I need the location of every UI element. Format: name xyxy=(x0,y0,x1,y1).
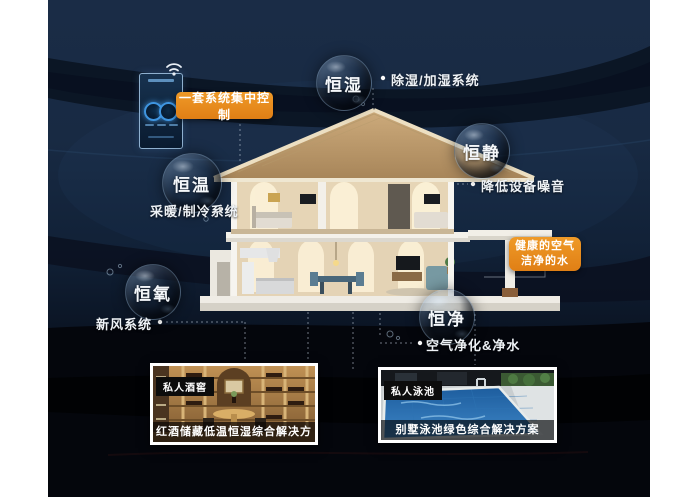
bubble-constant-oxygen: 恒氧 xyxy=(125,264,181,320)
bubble-label: 恒湿 xyxy=(325,71,363,96)
card-tag: 私人酒窖 xyxy=(156,377,214,396)
card-tag: 私人泳池 xyxy=(384,381,442,400)
panel-footer-bar xyxy=(148,136,174,138)
healthy-air-box: 健康的空气 洁净的水 xyxy=(509,237,581,271)
annotation-fresh-air: 新风系统 xyxy=(96,314,152,333)
bubble-constant-humidity: 恒湿 xyxy=(316,55,372,111)
bubble-label: 恒净 xyxy=(428,305,466,330)
panel-stat xyxy=(169,124,178,126)
card-caption: 红酒储藏低温恒湿综合解决方案 xyxy=(153,422,315,442)
healthy-air-line1: 健康的空气 xyxy=(515,239,575,254)
card-wine-cellar: 私人酒窖 红酒储藏低温恒湿综合解决方案 xyxy=(150,363,318,445)
annotation-noise-reduction: 降低设备噪音 xyxy=(481,176,565,195)
panel-stat xyxy=(145,124,154,126)
card-private-pool: 私人泳池 别墅泳池绿色综合解决方案 xyxy=(378,367,557,443)
bubble-label: 恒氧 xyxy=(134,280,172,305)
annotation-dehumidify-system: 除湿/加湿系统 xyxy=(391,70,480,89)
central-control-text: 一套系统集中控制 xyxy=(176,89,273,123)
annotation-air-water-purification: 空气净化&净水 xyxy=(426,335,520,354)
bubble-constant-quiet: 恒静 xyxy=(454,123,510,179)
panel-stat xyxy=(157,124,166,126)
card-caption: 别墅泳池绿色综合解决方案 xyxy=(381,420,554,440)
infographic-stage: 一套系统集中控制 健康的空气 洁净的水 恒湿 恒静 恒温 恒氧 恒净 除湿/加湿… xyxy=(0,0,700,497)
annotation-heating-cooling: 采暖/制冷系统 xyxy=(150,201,239,220)
central-control-label: 一套系统集中控制 xyxy=(176,92,273,119)
bubble-label: 恒静 xyxy=(463,139,501,164)
bubble-label: 恒温 xyxy=(173,171,211,196)
wifi-icon xyxy=(162,56,186,76)
healthy-air-line2: 洁净的水 xyxy=(521,254,569,269)
panel-header-bar xyxy=(148,79,174,82)
